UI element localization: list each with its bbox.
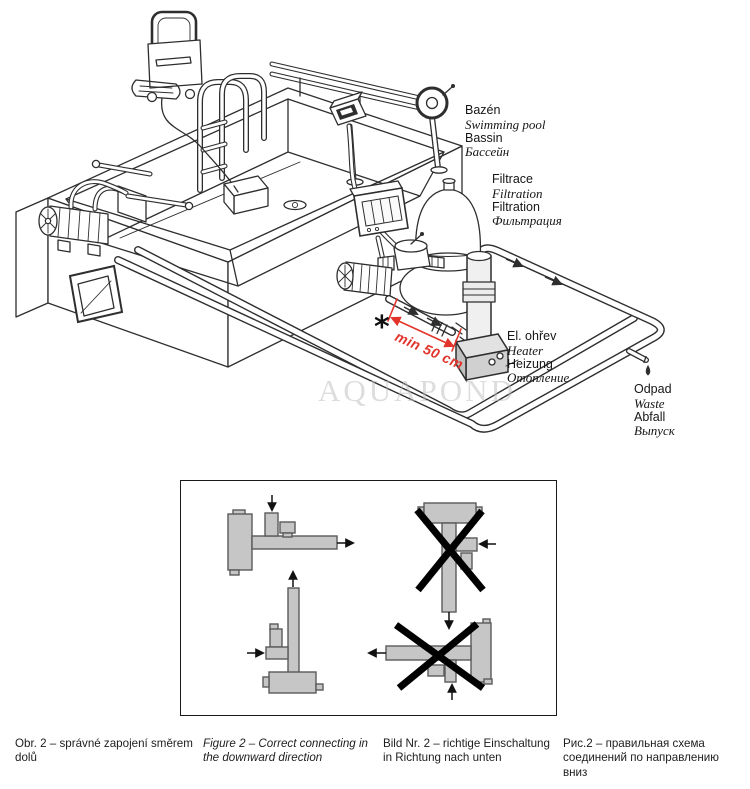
control-unit	[350, 181, 408, 236]
label-line: Heizung	[507, 358, 569, 372]
label-line: Waste	[634, 397, 675, 411]
caption-english: Figure 2 – Correct connecting in the dow…	[203, 737, 375, 766]
manual-page: min 50 cm * AQUAPOND Bazén Swimming pool…	[0, 0, 750, 789]
label-line: Бассейн	[465, 145, 546, 159]
label-line: Bassin	[465, 132, 546, 146]
label-line: Heater	[507, 344, 569, 358]
wrong-connection-vertical	[417, 503, 496, 628]
label-line: Отопление	[507, 371, 569, 385]
label-filtration: Filtrace Filtration Filtration Фильтраци…	[492, 173, 562, 228]
waste-outlet-drip	[646, 365, 651, 376]
electrical-box	[70, 266, 122, 322]
label-heater: El. ohřev Heater Heizung Отопление	[507, 330, 569, 385]
figure2-diagram	[181, 481, 555, 714]
caption-czech: Obr. 2 – správné zapojení směrem dolů	[15, 737, 197, 766]
watermark-text: AQUAPOND	[318, 373, 516, 408]
label-line: Filtrace	[492, 173, 562, 187]
caption-russian: Рис.2 – правильная схема соединений по н…	[563, 737, 733, 780]
label-waste: Odpad Waste Abfall Выпуск	[634, 383, 675, 438]
label-line: Abfall	[634, 411, 675, 425]
label-line: Filtration	[492, 187, 562, 201]
cleaner-caddy	[132, 12, 202, 102]
label-line: Bazén	[465, 104, 546, 118]
correct-connection-vertical	[247, 572, 323, 693]
label-line: Фильтрация	[492, 214, 562, 228]
main-drain	[284, 201, 306, 210]
caption-german: Bild Nr. 2 – richtige Einschaltung in Ri…	[383, 737, 561, 766]
label-line: Odpad	[634, 383, 675, 397]
label-pool: Bazén Swimming pool Bassin Бассейн	[465, 104, 546, 159]
correct-connection-horizontal	[228, 495, 353, 575]
label-line: Swimming pool	[465, 118, 546, 132]
label-line: El. ohřev	[507, 330, 569, 344]
label-line: Выпуск	[634, 424, 675, 438]
asterisk-mark: *	[374, 310, 390, 345]
figure2-box	[180, 480, 557, 716]
wrong-connection-horizontal	[369, 619, 492, 700]
label-line: Filtration	[492, 201, 562, 215]
